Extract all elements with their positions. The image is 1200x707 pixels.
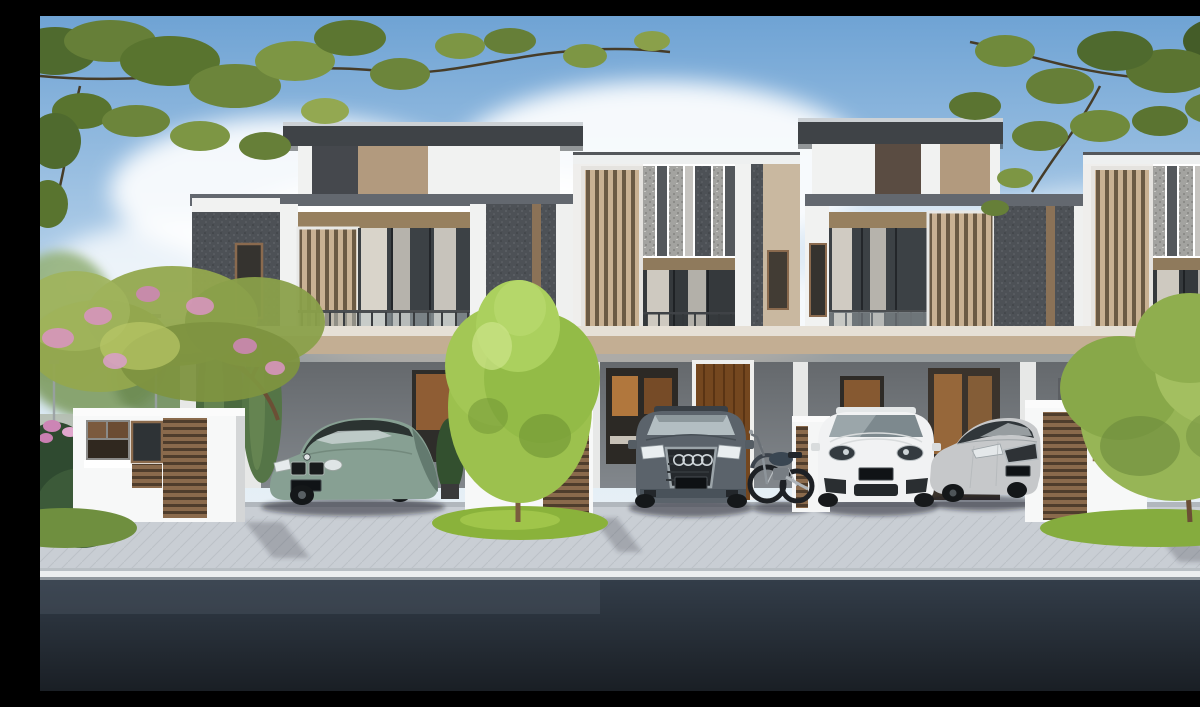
headlight bbox=[829, 446, 855, 461]
transom-band bbox=[643, 258, 735, 270]
road bbox=[40, 580, 1200, 691]
headlight bbox=[324, 460, 342, 471]
curb bbox=[40, 571, 1200, 577]
terrace-houses-rendering bbox=[40, 16, 1200, 691]
gate-window bbox=[132, 422, 162, 488]
wheel bbox=[635, 494, 655, 508]
house-unit-b1 bbox=[573, 152, 800, 332]
car-audi-suv bbox=[628, 406, 754, 508]
mailbox-recess bbox=[84, 420, 132, 468]
gutter-line bbox=[40, 568, 1200, 571]
bmw-roundel bbox=[304, 454, 310, 460]
louver-panel bbox=[1043, 412, 1087, 520]
side-mirror bbox=[811, 443, 820, 451]
side-window bbox=[810, 244, 826, 316]
roof bbox=[283, 126, 583, 146]
louver-panel bbox=[163, 418, 207, 518]
gate-left bbox=[73, 408, 245, 522]
balcony-header bbox=[298, 212, 470, 228]
side-mirror bbox=[932, 443, 941, 451]
roof bbox=[798, 122, 1003, 144]
license-plate bbox=[675, 477, 707, 489]
wheel bbox=[914, 493, 934, 507]
wheel bbox=[727, 494, 747, 508]
headlight bbox=[717, 445, 741, 459]
headlight bbox=[641, 445, 665, 459]
louver-screen bbox=[928, 212, 994, 332]
headlight bbox=[897, 446, 923, 461]
wheel bbox=[1007, 482, 1027, 498]
small-window bbox=[768, 251, 788, 309]
side-mirror bbox=[745, 440, 754, 449]
car-porsche-suv bbox=[811, 407, 941, 507]
wheel bbox=[818, 493, 838, 507]
slab-fascia bbox=[180, 336, 1200, 354]
glass-doors bbox=[643, 270, 735, 332]
stone-mosaic-wall bbox=[643, 164, 735, 258]
side-mirror bbox=[628, 440, 637, 449]
license-plate bbox=[859, 468, 893, 480]
license-plate bbox=[1006, 466, 1030, 476]
